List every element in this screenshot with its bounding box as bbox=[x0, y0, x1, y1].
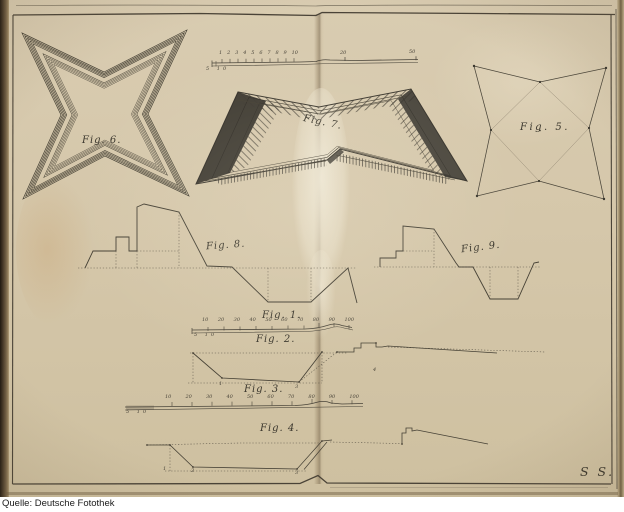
scanned-book-plate: Fig. 6. Fig. 7. Fig. 5. Fig. 8. Fig. 9. … bbox=[0, 0, 624, 512]
fig6-star-plan-drawing bbox=[22, 30, 189, 199]
fig3-scale-numbers: 102030405060708090100 bbox=[165, 395, 359, 400]
source-caption: Quelle: Deutsche Fotothek bbox=[2, 497, 114, 511]
top-ruler-mid-mark: 20 bbox=[340, 51, 346, 56]
fig5-label: Fig. 5. bbox=[520, 122, 570, 133]
fig8-profile-drawing bbox=[78, 204, 357, 303]
fig1-scale-numbers: 102030405060708090100 bbox=[202, 318, 354, 323]
fig2-point-mark: 1 bbox=[219, 382, 222, 387]
fig4-label: Fig. 4. bbox=[260, 423, 299, 434]
caption-bar: Quelle: Deutsche Fotothek bbox=[0, 497, 624, 512]
plate-signature: S S. bbox=[580, 464, 615, 479]
fig3-scale-line-drawing bbox=[125, 399, 363, 410]
fig2-point-mark: 4 bbox=[373, 368, 376, 373]
top-ruler-sub-left: 5 10 bbox=[206, 67, 229, 72]
top-scale-ruler-drawing bbox=[212, 56, 418, 67]
fig9-profile-drawing bbox=[374, 226, 540, 299]
page-bottom-edge bbox=[6, 492, 618, 495]
fig3-sub-left: 5 10 bbox=[126, 410, 149, 415]
top-ruler-numbers: 12345678910 bbox=[219, 51, 298, 56]
fig4-point-mark: 2 bbox=[191, 469, 194, 474]
fig2-ditch-profile-drawing bbox=[188, 342, 545, 383]
fig2-label: Fig. 2. bbox=[256, 334, 295, 345]
fig2-point-mark: 3 bbox=[295, 385, 298, 390]
top-ruler-end-mark: 50 bbox=[409, 50, 415, 55]
fig4-point-mark: 1 bbox=[163, 467, 166, 472]
fig4-point-mark: 3 bbox=[295, 471, 298, 476]
fig7-perspective-fort-drawing bbox=[196, 89, 467, 185]
fig1-sub-left: 5 10 bbox=[194, 333, 217, 338]
fig4-ditch-profile-drawing bbox=[146, 428, 488, 471]
engraving-plate bbox=[0, 0, 624, 497]
fig6-label: Fig. 6. bbox=[82, 135, 121, 146]
plate-frame bbox=[13, 5, 618, 489]
